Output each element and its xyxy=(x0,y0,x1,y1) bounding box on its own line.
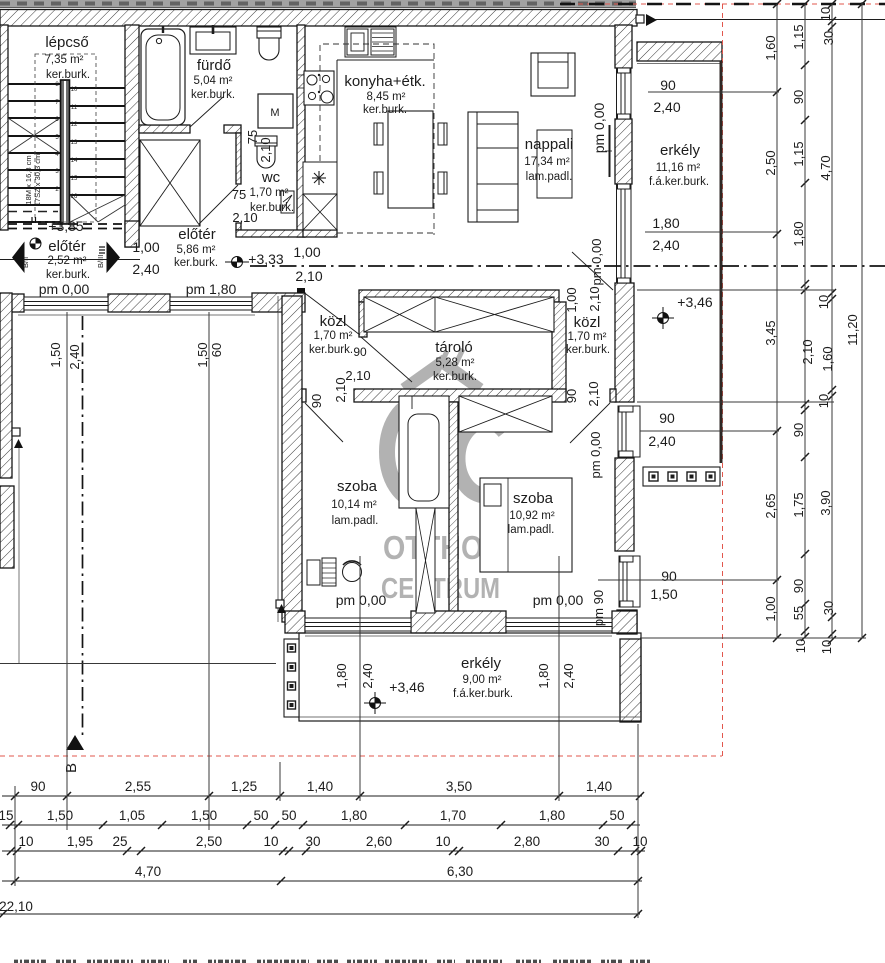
svg-text:lam.padl.: lam.padl. xyxy=(508,524,555,536)
svg-text:90: 90 xyxy=(791,423,806,437)
svg-text:90: 90 xyxy=(660,77,676,93)
svg-text:10: 10 xyxy=(71,87,78,93)
svg-text:10: 10 xyxy=(435,834,450,849)
svg-text:2,50: 2,50 xyxy=(196,834,222,849)
svg-text:pm 0,00: pm 0,00 xyxy=(39,281,90,297)
svg-text:2,50: 2,50 xyxy=(763,150,778,175)
svg-text:előtér: előtér xyxy=(48,238,86,255)
svg-text:50: 50 xyxy=(253,808,268,823)
svg-text:fürdő: fürdő xyxy=(197,57,231,74)
svg-text:2,40: 2,40 xyxy=(561,663,576,688)
svg-text:1,80: 1,80 xyxy=(536,663,551,688)
svg-text:90: 90 xyxy=(661,568,677,584)
svg-text:9,00 m²: 9,00 m² xyxy=(463,674,502,686)
svg-text:10: 10 xyxy=(793,639,808,653)
svg-text:2,40: 2,40 xyxy=(67,344,82,369)
svg-text:12: 12 xyxy=(71,122,78,128)
svg-text:lépcső: lépcső xyxy=(45,34,88,51)
svg-text:2,10: 2,10 xyxy=(295,268,322,284)
svg-text:2,10: 2,10 xyxy=(345,368,370,383)
svg-text:11,16 m²: 11,16 m² xyxy=(656,162,701,174)
svg-text:30: 30 xyxy=(821,601,836,615)
svg-text:1,00: 1,00 xyxy=(763,596,778,621)
svg-text:ker.burk.: ker.burk. xyxy=(46,269,90,281)
svg-text:1,50: 1,50 xyxy=(48,342,63,367)
svg-text:1,50: 1,50 xyxy=(195,342,210,367)
svg-text:2,10: 2,10 xyxy=(586,381,601,406)
svg-text:pm 0,00: pm 0,00 xyxy=(589,239,604,286)
svg-text:2,55: 2,55 xyxy=(125,779,151,794)
svg-text:5,04 m²: 5,04 m² xyxy=(194,75,233,87)
svg-text:f.á.ker.burk.: f.á.ker.burk. xyxy=(453,688,513,700)
svg-text:+3,85: +3,85 xyxy=(48,218,84,234)
svg-text:10: 10 xyxy=(818,7,833,21)
svg-text:2,65: 2,65 xyxy=(763,493,778,518)
svg-text:3,90: 3,90 xyxy=(818,490,833,515)
svg-text:B/II: B/II xyxy=(21,257,30,268)
svg-text:1,80: 1,80 xyxy=(539,808,565,823)
svg-text:ker.burk.: ker.burk. xyxy=(191,89,235,101)
svg-text:2,40: 2,40 xyxy=(648,433,675,449)
svg-text:18M x 16,8 cm: 18M x 16,8 cm xyxy=(24,155,33,204)
svg-text:4,70: 4,70 xyxy=(135,864,161,879)
svg-text:16: 16 xyxy=(71,194,78,200)
svg-text:1,70: 1,70 xyxy=(440,808,466,823)
svg-text:6,30: 6,30 xyxy=(447,864,473,879)
svg-text:5,28 m²: 5,28 m² xyxy=(436,357,475,369)
svg-text:előtér: előtér xyxy=(178,226,216,243)
svg-text:7,35 m²: 7,35 m² xyxy=(45,54,84,66)
svg-text:ker.burk.: ker.burk. xyxy=(566,344,610,356)
svg-text:lam.padl.: lam.padl. xyxy=(526,171,573,183)
svg-text:3,50: 3,50 xyxy=(446,779,472,794)
svg-text:55: 55 xyxy=(791,606,806,620)
svg-text:pm 0,00: pm 0,00 xyxy=(533,592,584,608)
svg-text:1,60: 1,60 xyxy=(763,35,778,60)
svg-text:2,10: 2,10 xyxy=(800,339,815,364)
svg-text:f.á.ker.burk.: f.á.ker.burk. xyxy=(649,176,709,188)
svg-text:3,45: 3,45 xyxy=(763,320,778,345)
svg-text:1,15: 1,15 xyxy=(791,24,806,49)
svg-text:1,40: 1,40 xyxy=(307,779,333,794)
svg-text:1,00: 1,00 xyxy=(564,287,579,312)
svg-text:30: 30 xyxy=(821,31,836,45)
svg-text:90: 90 xyxy=(791,579,806,593)
svg-text:25: 25 xyxy=(112,834,127,849)
svg-text:2,10: 2,10 xyxy=(587,286,602,311)
svg-text:1,95: 1,95 xyxy=(67,834,93,849)
svg-text:wc: wc xyxy=(261,169,281,186)
svg-text:1,00: 1,00 xyxy=(293,244,320,260)
svg-text:15: 15 xyxy=(71,176,78,182)
svg-text:közl: közl xyxy=(574,314,601,331)
svg-text:5,86 m²: 5,86 m² xyxy=(177,244,216,256)
svg-text:közl: közl xyxy=(320,313,347,330)
svg-text:4,70: 4,70 xyxy=(818,155,833,180)
svg-text:10: 10 xyxy=(816,295,831,309)
svg-text:ker.burk.: ker.burk. xyxy=(46,69,90,81)
svg-text:1,80: 1,80 xyxy=(341,808,367,823)
svg-text:13: 13 xyxy=(71,140,78,146)
svg-text:90: 90 xyxy=(353,345,367,359)
svg-text:tároló: tároló xyxy=(435,339,473,356)
svg-text:erkély: erkély xyxy=(660,142,701,159)
svg-text:10: 10 xyxy=(18,834,33,849)
svg-text:1,60: 1,60 xyxy=(820,346,835,371)
svg-text:90: 90 xyxy=(309,394,324,408)
svg-text:1,75: 1,75 xyxy=(791,492,806,517)
svg-text:pm 0,00: pm 0,00 xyxy=(591,102,607,153)
svg-text:15: 15 xyxy=(0,808,14,823)
svg-text:10: 10 xyxy=(632,834,647,849)
svg-text:90: 90 xyxy=(791,90,806,104)
svg-text:90: 90 xyxy=(30,779,45,794)
svg-text:10: 10 xyxy=(263,834,278,849)
svg-text:ker.burk.: ker.burk. xyxy=(433,371,477,383)
svg-text:2,80: 2,80 xyxy=(514,834,540,849)
svg-text:erkély: erkély xyxy=(461,655,502,672)
svg-text:10: 10 xyxy=(819,640,834,654)
svg-text:30: 30 xyxy=(594,834,609,849)
svg-text:1,50: 1,50 xyxy=(191,808,217,823)
svg-text:szoba: szoba xyxy=(513,490,554,507)
svg-text:1,50: 1,50 xyxy=(47,808,73,823)
svg-text:30: 30 xyxy=(305,834,320,849)
svg-text:1,40: 1,40 xyxy=(586,779,612,794)
svg-text:75: 75 xyxy=(232,187,246,202)
svg-text:lam.padl.: lam.padl. xyxy=(332,515,379,527)
svg-text:2,10: 2,10 xyxy=(258,137,273,162)
svg-text:22,10: 22,10 xyxy=(0,899,33,914)
svg-text:1,15: 1,15 xyxy=(791,141,806,166)
svg-text:10,14 m²: 10,14 m² xyxy=(331,499,377,511)
svg-text:ker.burk.: ker.burk. xyxy=(309,344,353,356)
svg-text:1,80: 1,80 xyxy=(652,215,679,231)
svg-text:2,10: 2,10 xyxy=(232,210,257,225)
svg-text:pm 0,00: pm 0,00 xyxy=(588,432,603,479)
svg-text:1,05: 1,05 xyxy=(119,808,145,823)
svg-text:B: B xyxy=(63,763,80,773)
svg-text:nappali: nappali xyxy=(525,136,573,153)
svg-text:60: 60 xyxy=(209,343,224,357)
svg-text:11: 11 xyxy=(71,105,78,111)
svg-text:1,25: 1,25 xyxy=(231,779,257,794)
svg-text:1,50: 1,50 xyxy=(650,586,677,602)
svg-text:1,70 m²: 1,70 m² xyxy=(314,330,353,342)
svg-text:50: 50 xyxy=(281,808,296,823)
svg-text:1,70 m²: 1,70 m² xyxy=(250,187,289,199)
svg-text:17SZ x 30,3 cm: 17SZ x 30,3 cm xyxy=(33,154,42,207)
svg-text:14: 14 xyxy=(71,158,78,164)
svg-text:10: 10 xyxy=(816,394,831,408)
svg-text:ker.burk.: ker.burk. xyxy=(174,257,218,269)
svg-text:ker.burk.: ker.burk. xyxy=(363,104,407,116)
svg-text:pm 90: pm 90 xyxy=(591,590,606,626)
svg-text:2,40: 2,40 xyxy=(652,237,679,253)
svg-text:pm 1,80: pm 1,80 xyxy=(186,281,237,297)
svg-text:+3,46: +3,46 xyxy=(677,294,713,310)
svg-text:szoba: szoba xyxy=(337,478,378,495)
svg-text:90: 90 xyxy=(659,410,675,426)
svg-text:B/III: B/III xyxy=(96,255,105,268)
svg-text:11,20: 11,20 xyxy=(845,314,860,346)
svg-text:1,00: 1,00 xyxy=(132,239,159,255)
svg-text:8,45 m²: 8,45 m² xyxy=(367,91,406,103)
svg-text:1,80: 1,80 xyxy=(334,663,349,688)
svg-text:pm 0,00: pm 0,00 xyxy=(336,592,387,608)
svg-text:CENTRUM: CENTRUM xyxy=(381,573,500,605)
svg-text:2,40: 2,40 xyxy=(132,261,159,277)
svg-text:2,60: 2,60 xyxy=(366,834,392,849)
svg-text:17,34 m²: 17,34 m² xyxy=(524,156,570,168)
svg-text:90: 90 xyxy=(564,389,579,403)
svg-text:10,92 m²: 10,92 m² xyxy=(509,510,555,522)
svg-text:2,52 m²: 2,52 m² xyxy=(48,255,87,267)
svg-text:konyha+étk.: konyha+étk. xyxy=(344,73,425,90)
svg-text:2,40: 2,40 xyxy=(360,663,375,688)
svg-text:2,10: 2,10 xyxy=(333,377,348,402)
svg-text:+3,33: +3,33 xyxy=(248,251,284,267)
svg-text:2,40: 2,40 xyxy=(653,99,680,115)
svg-text:50: 50 xyxy=(609,808,624,823)
svg-text:+3,46: +3,46 xyxy=(389,679,425,695)
svg-text:1,80: 1,80 xyxy=(791,221,806,246)
svg-text:1,70 m²: 1,70 m² xyxy=(568,331,607,343)
svg-text:M: M xyxy=(270,107,279,119)
